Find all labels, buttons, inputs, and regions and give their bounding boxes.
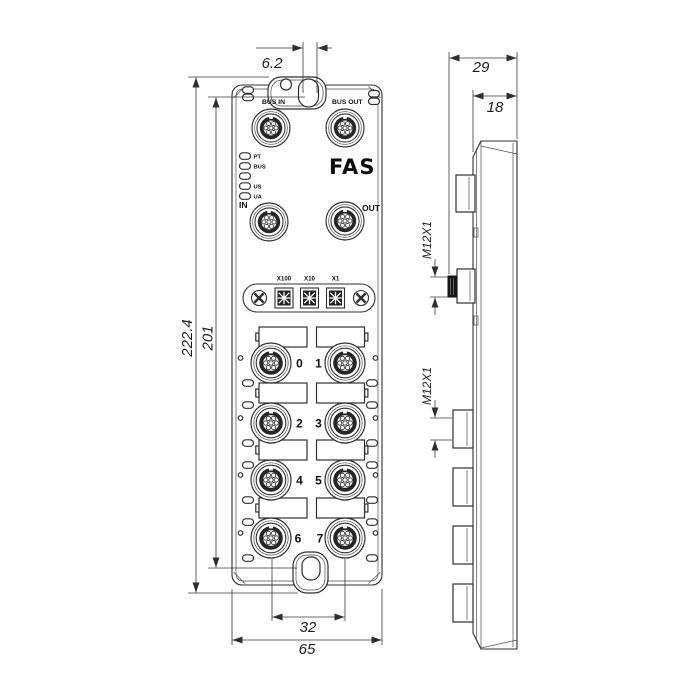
edge-led (367, 380, 378, 387)
port-connector-1 (325, 343, 365, 383)
port-indicator-dot (238, 473, 243, 478)
edge-led (243, 440, 254, 447)
switch-label-x100: X100 (277, 276, 292, 283)
port-indicator-dot (373, 531, 378, 536)
edge-led (243, 462, 254, 469)
pilot-hole (281, 79, 292, 90)
side-bottom-face-edge (481, 640, 517, 648)
edge-led (369, 91, 380, 98)
switch-label-x1: X1 (332, 276, 340, 283)
port-connector-6 (251, 518, 291, 558)
port-connector-7 (325, 518, 365, 558)
plate-tab (365, 446, 368, 454)
dimension-thread-mid: M12X1 (420, 367, 452, 458)
dimension-value: 29 (472, 59, 490, 76)
dimension-value: 65 (299, 641, 316, 658)
edge-led (367, 519, 378, 526)
dimension-value: 201 (200, 325, 217, 351)
dimension-depth: 29 (449, 52, 517, 274)
edge-led (243, 87, 254, 94)
port-number-1: 1 (315, 357, 322, 371)
label-plate (317, 498, 365, 518)
port-number-3: 3 (315, 417, 322, 431)
port-connector-5 (325, 460, 365, 500)
side-bottom-chamfer (473, 633, 481, 649)
side-top-chamfer (473, 141, 481, 157)
side-connector-boss (456, 175, 475, 212)
plate-tab (365, 389, 368, 397)
port-indicator-dot (373, 473, 378, 478)
bottom-mounting-ear (293, 552, 328, 593)
edge-led (243, 555, 254, 562)
edge-led (367, 440, 378, 447)
rotary-switch-x100 (275, 288, 293, 308)
led-label-ua: UA (254, 195, 263, 201)
port-number-2: 2 (296, 417, 303, 431)
status-led (240, 163, 251, 170)
in-label: IN (239, 200, 248, 210)
side-connector-bosses (448, 175, 475, 622)
status-led (240, 183, 251, 190)
status-led (240, 173, 251, 180)
thread-spec: M12X1 (420, 221, 434, 259)
edge-led (367, 555, 378, 562)
mounting-slot (302, 557, 320, 580)
dimension-value: 18 (487, 99, 504, 116)
dimension-value: 6.2 (262, 55, 284, 72)
address-switch-panel: X100 X10 X1 (243, 276, 375, 313)
rotary-switch-x1 (327, 288, 345, 308)
side-connector-boss (457, 269, 475, 303)
port-connector-2 (251, 403, 291, 443)
port-connector-0 (251, 343, 291, 383)
bus-in-label: BUS IN (262, 99, 285, 106)
side-connector-boss (453, 410, 473, 448)
status-led (240, 193, 251, 200)
port-number-4: 4 (296, 474, 303, 488)
side-top-face-edge (481, 146, 517, 154)
port-indicator-dot (238, 531, 243, 536)
technical-drawing: BUS IN BUS OUT PT BUS US UA FAS IN OUT X… (0, 0, 700, 700)
brand-logo: FAS (329, 155, 377, 179)
side-view: 29 18 M12X1 M12X1 (420, 52, 517, 649)
edge-led (367, 462, 378, 469)
bus-out-label: BUS OUT (332, 99, 363, 106)
out-label: OUT (362, 203, 381, 213)
port-number-7: 7 (317, 532, 324, 546)
dimension-thread-top: M12X1 (420, 221, 448, 315)
panel-screw (354, 291, 369, 306)
side-connector-boss (453, 526, 473, 564)
label-plate (259, 383, 307, 403)
side-face-detail (474, 228, 478, 237)
label-plate (259, 498, 307, 518)
port-connector-3 (325, 403, 365, 443)
edge-led (243, 94, 254, 101)
status-led-stack: PT BUS US UA (240, 153, 266, 201)
edge-led (243, 497, 254, 504)
edge-led (243, 519, 254, 526)
plate-tab (365, 333, 368, 341)
edge-led (243, 380, 254, 387)
rotary-switch-x10 (301, 288, 319, 308)
edge-led (367, 497, 378, 504)
port-indicator-dot (373, 416, 378, 421)
port-number-0: 0 (296, 357, 303, 371)
edge-led (369, 98, 380, 105)
port-indicator-dot (238, 356, 243, 361)
bus-in-connector (252, 109, 290, 147)
front-view: BUS IN BUS OUT PT BUS US UA FAS IN OUT X… (232, 77, 382, 593)
switch-label-x10: X10 (304, 276, 316, 283)
label-plate (317, 383, 365, 403)
panel-screw (252, 291, 267, 306)
dimension-value: 222.4 (179, 319, 196, 358)
out-connector (326, 202, 364, 240)
led-label-bus: BUS (254, 165, 266, 171)
m12-thread (448, 276, 457, 297)
mounting-slot (299, 79, 319, 107)
bus-out-connector (326, 109, 364, 147)
side-connector-boss (453, 468, 473, 506)
led-label-us: US (254, 185, 262, 191)
side-face-detail (474, 316, 478, 325)
port-number-5: 5 (315, 474, 322, 488)
plate-tab (365, 504, 368, 512)
status-led (240, 153, 251, 160)
dimension-body-depth: 18 (473, 90, 517, 152)
port-indicator-dot (238, 416, 243, 421)
edge-led (243, 402, 254, 409)
side-connector-boss (453, 584, 473, 622)
side-profile (473, 141, 517, 649)
port-number-6: 6 (295, 532, 302, 546)
in-connector (250, 203, 288, 241)
dimension-value: 32 (300, 619, 317, 636)
thread-spec: M12X1 (420, 367, 434, 405)
port-indicator-dot (373, 356, 378, 361)
port-connector-4 (251, 460, 291, 500)
led-label-pt: PT (254, 155, 262, 161)
edge-led (367, 402, 378, 409)
